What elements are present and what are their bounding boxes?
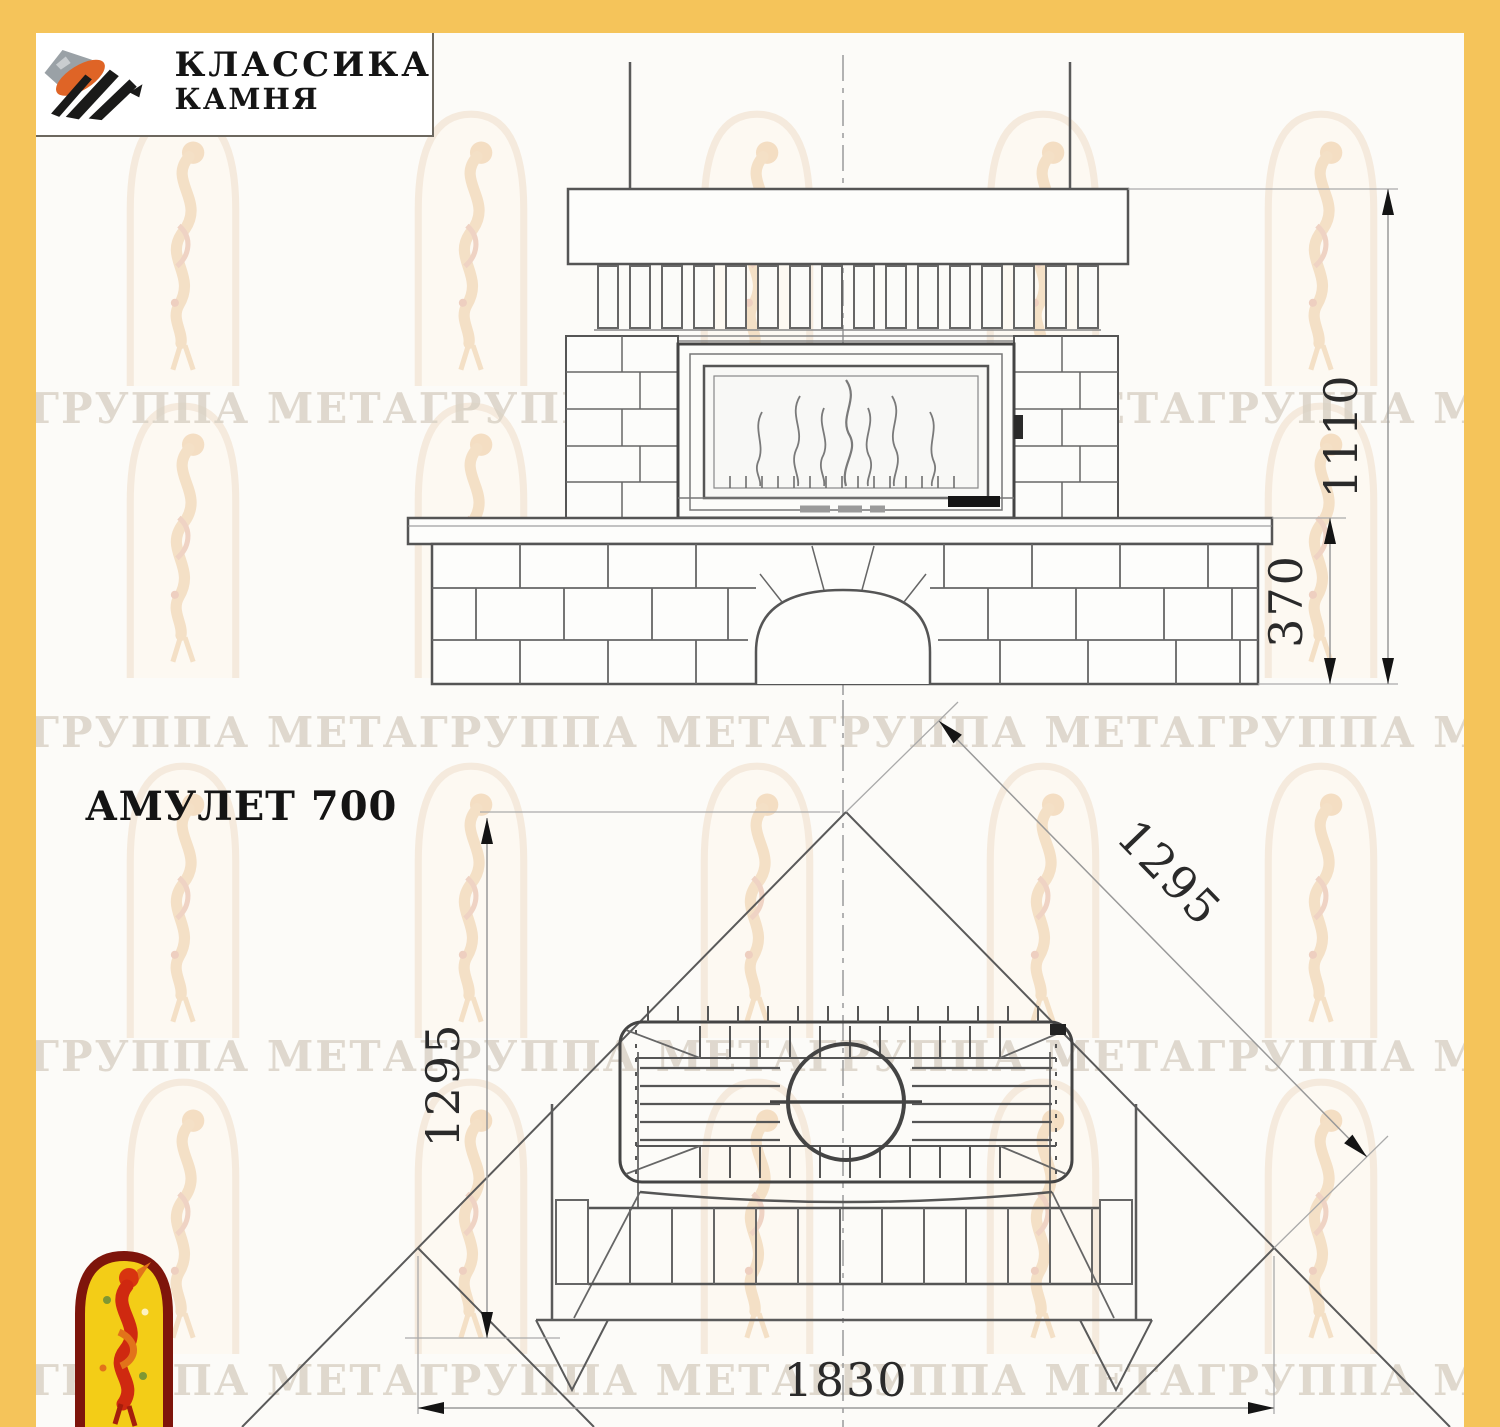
insert-plan	[620, 1006, 1072, 1202]
arched-niche	[756, 590, 930, 684]
page-border-left	[0, 0, 36, 1427]
page-border-top	[0, 0, 1500, 33]
right-brick-pilaster	[1014, 336, 1118, 518]
dim-plan-width-label: 1830	[783, 1353, 908, 1407]
front-elevation-view	[408, 55, 1272, 695]
hearth-brick-row	[556, 1200, 1132, 1284]
logo-line2: КАМНЯ	[174, 84, 432, 114]
page-border-right	[1464, 0, 1500, 1427]
dim-front-height-label: 1110	[1314, 373, 1368, 498]
fireplace-technical-drawing: 1110 370 1295 1295 1830	[0, 0, 1500, 1427]
company-logo: КЛАССИКА КАМНЯ	[28, 25, 434, 137]
chimney-lines	[630, 62, 1070, 189]
splayed-walls	[574, 1052, 1114, 1318]
dim-plinth-height-label: 370	[1259, 554, 1313, 648]
mantel-shelf	[568, 189, 1128, 264]
dim-plan-diagonal-label: 1295	[1107, 809, 1233, 936]
stone-logo-icon	[38, 33, 160, 129]
platform-sides	[536, 1104, 1152, 1320]
logo-line1: КЛАССИКА	[174, 48, 432, 84]
firebox-insert	[678, 344, 1023, 527]
door-handle	[1014, 415, 1023, 439]
page: ГРУППА МЕТАГРУППА МЕТАГРУППА МЕТАГРУППА …	[0, 0, 1500, 1427]
ash-drawer	[948, 496, 1000, 507]
hearth-slab	[408, 518, 1272, 544]
dim-plan-left-label: 1295	[416, 1022, 470, 1147]
logo-text: КЛАССИКА КАМНЯ	[174, 48, 432, 114]
stork-emblem-icon	[73, 1248, 175, 1427]
dentil-frieze	[598, 266, 1098, 328]
model-title: АМУЛЕТ 700	[85, 783, 397, 830]
